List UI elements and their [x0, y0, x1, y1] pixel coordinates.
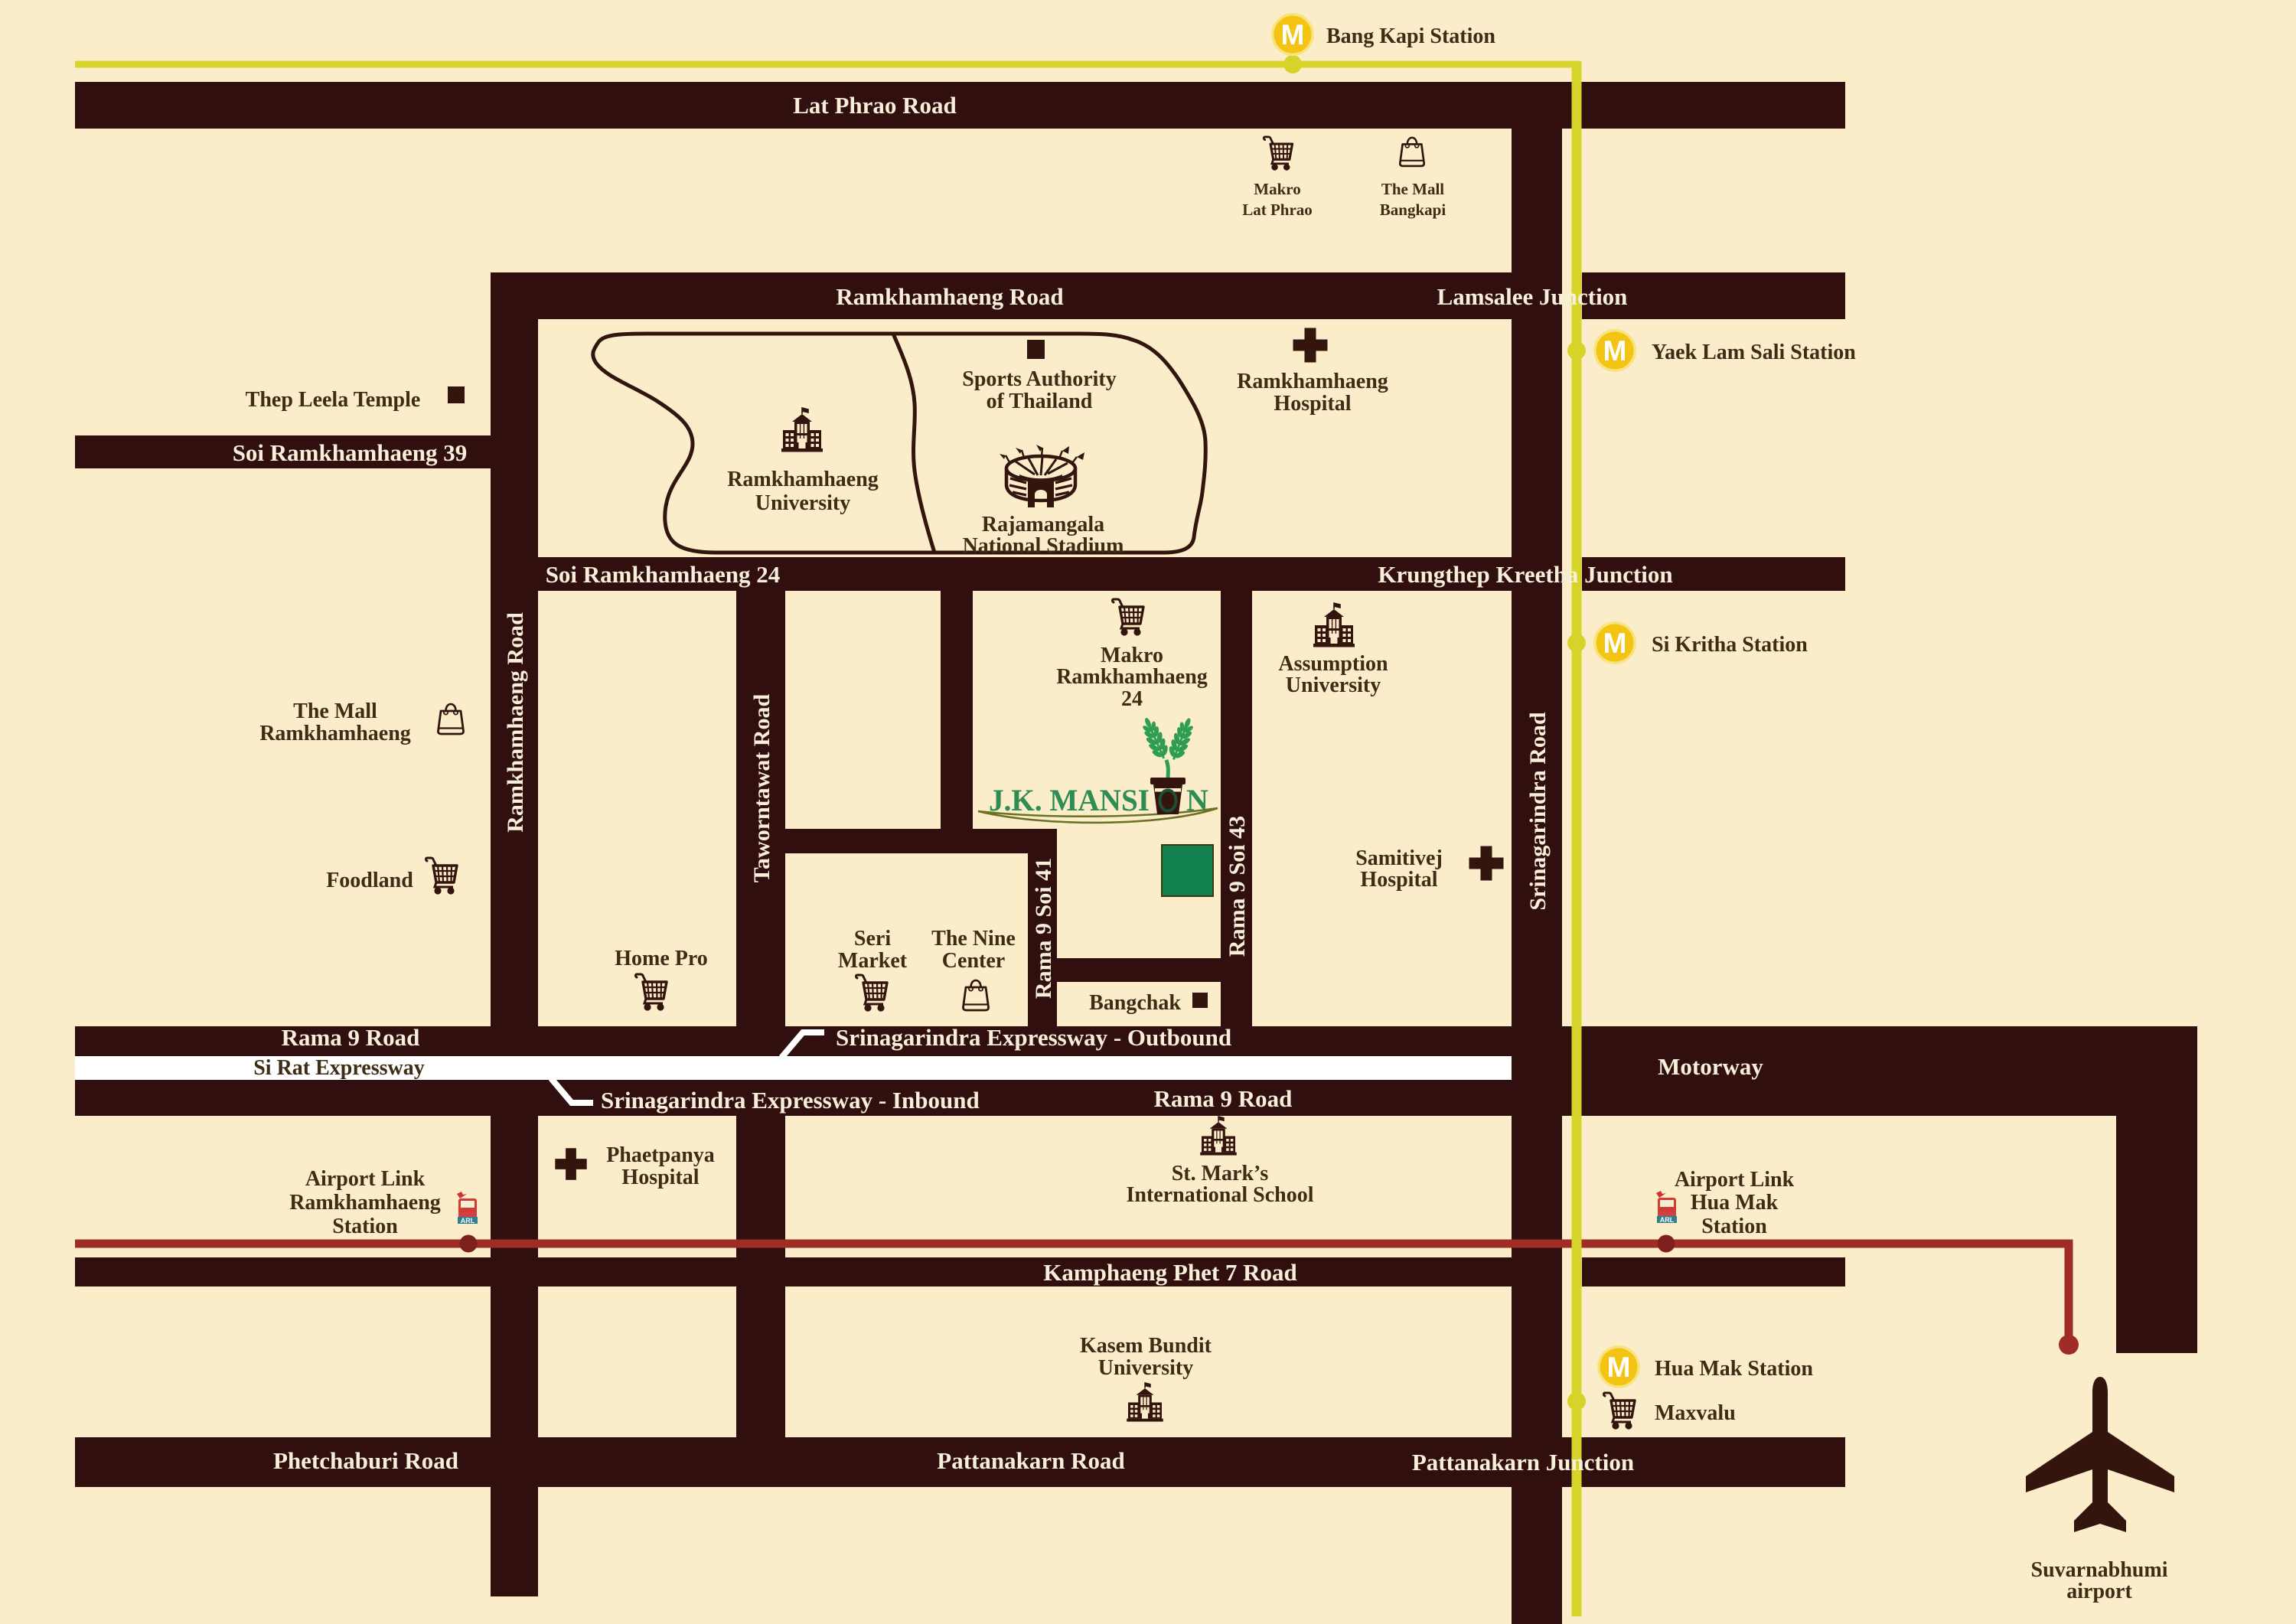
svg-text:Foodland: Foodland	[326, 869, 413, 892]
svg-text:Ramkhamhaeng: Ramkhamhaeng	[1056, 665, 1208, 689]
svg-text:Si Kritha Station: Si Kritha Station	[1652, 633, 1808, 657]
svg-text:Bangchak: Bangchak	[1089, 991, 1181, 1015]
svg-text:Bangkapi: Bangkapi	[1380, 201, 1446, 219]
svg-text:Srinagarindra Expressway - Inb: Srinagarindra Expressway - Inbound	[601, 1087, 980, 1114]
svg-text:Pattanakarn Road: Pattanakarn Road	[937, 1447, 1124, 1474]
svg-text:Ramkhamhaeng: Ramkhamhaeng	[259, 722, 411, 745]
svg-text:The Nine: The Nine	[931, 927, 1016, 951]
svg-text:The Mall: The Mall	[1381, 180, 1444, 198]
svg-text:Hua Mak Station: Hua Mak Station	[1655, 1357, 1813, 1381]
svg-text:University: University	[1286, 673, 1381, 697]
svg-text:Ramkhamhaeng Road: Ramkhamhaeng Road	[503, 612, 528, 833]
svg-text:Makro: Makro	[1101, 644, 1163, 667]
svg-text:of Thailand: of Thailand	[987, 390, 1093, 413]
svg-text:Airport Link: Airport Link	[1675, 1168, 1795, 1192]
svg-text:Srinagarindra Road: Srinagarindra Road	[1525, 712, 1551, 911]
svg-text:Center: Center	[942, 949, 1005, 973]
svg-text:Lat Phrao Road: Lat Phrao Road	[793, 92, 957, 119]
svg-text:Airport Link: Airport Link	[305, 1167, 426, 1191]
svg-text:Taworntawat Road: Taworntawat Road	[749, 693, 775, 882]
svg-text:Krungthep Kreetha Junction: Krungthep Kreetha Junction	[1378, 561, 1672, 588]
svg-text:International School: International School	[1126, 1183, 1313, 1207]
svg-text:Hospital: Hospital	[621, 1166, 699, 1189]
svg-text:Samitivej: Samitivej	[1355, 846, 1443, 870]
svg-text:Maxvalu: Maxvalu	[1655, 1401, 1736, 1425]
svg-text:Bang Kapi Station: Bang Kapi Station	[1326, 24, 1495, 48]
svg-text:Rama 9 Road: Rama 9 Road	[282, 1024, 420, 1051]
svg-text:Makro: Makro	[1254, 180, 1300, 198]
svg-text:Srinagarindra Expressway - Out: Srinagarindra Expressway - Outbound	[836, 1024, 1231, 1051]
svg-text:University: University	[1098, 1356, 1193, 1380]
svg-text:Hospital: Hospital	[1360, 868, 1437, 892]
svg-text:Ramkhamhaeng: Ramkhamhaeng	[727, 468, 879, 491]
svg-text:St. Mark’s: St. Mark’s	[1172, 1162, 1269, 1185]
svg-text:Ramkhamhaeng: Ramkhamhaeng	[1237, 370, 1388, 393]
svg-text:Rajamangala: Rajamangala	[982, 513, 1104, 536]
svg-text:Rama 9 Soi 41: Rama 9 Soi 41	[1031, 858, 1056, 999]
svg-text:Hua Mak: Hua Mak	[1691, 1191, 1779, 1215]
svg-text:airport: airport	[2066, 1580, 2132, 1603]
svg-text:Station: Station	[1701, 1215, 1767, 1238]
svg-text:Thep Leela Temple: Thep Leela Temple	[246, 388, 421, 412]
svg-text:Lamsalee Junction: Lamsalee Junction	[1437, 283, 1628, 310]
svg-text:Phaetpanya: Phaetpanya	[606, 1143, 715, 1167]
svg-text:National Stadium: National Stadium	[963, 534, 1124, 558]
svg-text:Pattanakarn Junction: Pattanakarn Junction	[1412, 1449, 1634, 1476]
svg-text:Motorway: Motorway	[1658, 1053, 1763, 1080]
svg-text:Rama 9 Road: Rama 9 Road	[1154, 1085, 1293, 1112]
svg-text:Ramkhamhaeng: Ramkhamhaeng	[289, 1191, 441, 1215]
svg-text:Kamphaeng Phet 7 Road: Kamphaeng Phet 7 Road	[1043, 1259, 1297, 1286]
svg-text:Home Pro: Home Pro	[615, 947, 708, 970]
svg-text:Soi Ramkhamhaeng 39: Soi Ramkhamhaeng 39	[233, 439, 468, 466]
svg-text:Assumption: Assumption	[1278, 652, 1388, 676]
svg-text:Suvarnabhumi: Suvarnabhumi	[2031, 1558, 2168, 1582]
svg-text:Soi Ramkhamhaeng 24: Soi Ramkhamhaeng 24	[546, 561, 781, 588]
svg-text:Si Rat Expressway: Si Rat Expressway	[253, 1056, 425, 1080]
svg-text:Ramkhamhaeng Road: Ramkhamhaeng Road	[836, 283, 1063, 310]
svg-text:Kasem Bundit: Kasem Bundit	[1080, 1334, 1212, 1358]
svg-text:J.K. MANSI: J.K. MANSI	[989, 783, 1150, 817]
svg-text:24: 24	[1121, 687, 1143, 711]
svg-text:University: University	[755, 491, 850, 515]
svg-text:Rama 9 Soi 43: Rama 9 Soi 43	[1225, 816, 1250, 957]
svg-text:Yaek Lam Sali Station: Yaek Lam Sali Station	[1652, 341, 1856, 364]
svg-text:Lat Phrao: Lat Phrao	[1242, 201, 1313, 219]
svg-text:Sports Authority: Sports Authority	[962, 367, 1116, 391]
svg-text:Station: Station	[332, 1215, 398, 1238]
svg-text:Hospital: Hospital	[1274, 392, 1351, 416]
svg-text:Market: Market	[838, 949, 908, 973]
svg-text:Seri: Seri	[854, 927, 891, 951]
svg-text:Phetchaburi Road: Phetchaburi Road	[273, 1447, 458, 1474]
svg-text:N: N	[1186, 783, 1208, 817]
svg-text:The Mall: The Mall	[293, 699, 377, 723]
